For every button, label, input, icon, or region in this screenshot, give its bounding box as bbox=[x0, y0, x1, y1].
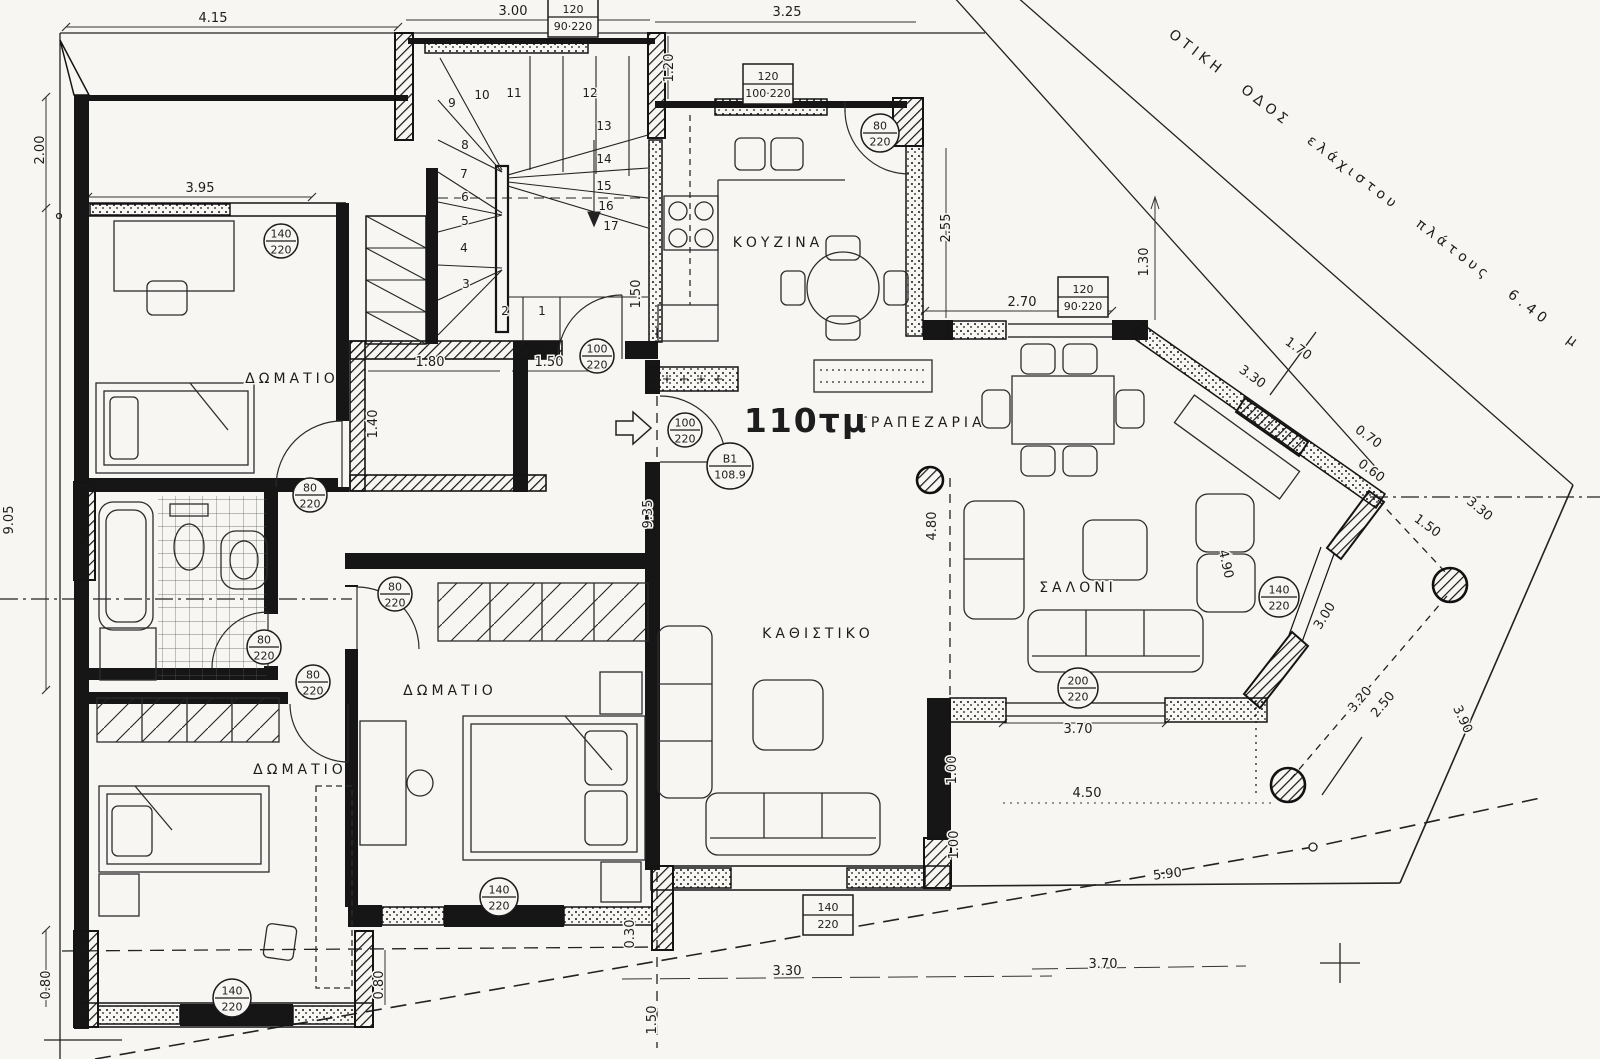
entry-arrow-icon bbox=[616, 412, 651, 444]
chair bbox=[1063, 446, 1097, 476]
door-tag-2-width: 100 bbox=[675, 417, 696, 430]
nightstand bbox=[99, 874, 139, 916]
sofa-2seat bbox=[964, 501, 1024, 619]
door-tag-7: 80220 bbox=[296, 665, 330, 699]
window-tag-2-height: 90·220 bbox=[1064, 300, 1103, 313]
chair bbox=[884, 271, 908, 305]
door-tag-0-width: 140 bbox=[271, 228, 292, 241]
column bbox=[917, 467, 943, 493]
door-tag-10-height: 220 bbox=[489, 900, 510, 913]
stair-step-number-2: 2 bbox=[501, 304, 509, 318]
dimension-label-4: 1.80 bbox=[416, 355, 445, 370]
pillow bbox=[585, 791, 627, 845]
unit-tag: Β1108.9 bbox=[707, 443, 753, 489]
door-tag-9-width: 200 bbox=[1068, 675, 1089, 688]
dimension-label-20: 4.80 bbox=[925, 512, 940, 541]
cabinet bbox=[658, 305, 718, 341]
door-tag-6-height: 220 bbox=[254, 650, 275, 663]
stair-step-number-17: 17 bbox=[603, 219, 618, 233]
door-tag-6: 80220 bbox=[247, 630, 281, 664]
bed bbox=[463, 716, 645, 860]
dimension-label-1: 3.00 bbox=[499, 4, 528, 19]
door-tag-1: 100220 bbox=[580, 339, 614, 373]
stair-step-number-12: 12 bbox=[582, 86, 597, 100]
stair-step-number-16: 16 bbox=[598, 199, 613, 213]
door-tag-3-width: 80 bbox=[873, 120, 887, 133]
sofa-corner bbox=[658, 626, 712, 798]
stair-step-number-7: 7 bbox=[460, 167, 468, 181]
dimension-label-3: 3.95 bbox=[186, 181, 215, 196]
dimension-label-18: 1.50 bbox=[629, 280, 644, 309]
unit-tag-width: Β1 bbox=[723, 453, 738, 466]
floor-plan-svg: ΔΩΜΑΤΙΟΔΩΜΑΤΙΟΔΩΜΑΤΙΟΚΟΥΖΙΝΑΤΡΑΠΕΖΑΡΙΑΣΑ… bbox=[0, 0, 1600, 1059]
door-tag-4-width: 80 bbox=[303, 482, 317, 495]
door-tag-10-width: 140 bbox=[489, 884, 510, 897]
dimension-label-21: 1.00 bbox=[945, 756, 960, 785]
stair-step-number-8: 8 bbox=[461, 138, 469, 152]
door-tag-2: 100220 bbox=[668, 413, 702, 447]
stair-step-number-5: 5 bbox=[461, 214, 469, 228]
chair bbox=[781, 271, 805, 305]
window-tag-1-width: 120 bbox=[758, 70, 779, 83]
room-label-5: ΣΑΛΟΝΙ bbox=[1039, 580, 1117, 596]
door-tag-11: 140220 bbox=[213, 979, 251, 1017]
chair bbox=[826, 316, 860, 340]
stair-step-number-14: 14 bbox=[596, 152, 611, 166]
window-tag-3-height: 220 bbox=[818, 918, 839, 931]
side-table bbox=[753, 680, 823, 750]
column bbox=[1271, 768, 1305, 802]
chair bbox=[1063, 344, 1097, 374]
dimension-label-23: 0.30 bbox=[623, 920, 638, 949]
nightstand bbox=[601, 862, 641, 902]
bedroom2-furniture bbox=[360, 583, 648, 902]
dimension-label-19: 9.35 bbox=[641, 500, 656, 529]
dimension-label-28: 1.70 bbox=[1282, 335, 1314, 364]
chair bbox=[1021, 344, 1055, 374]
chair bbox=[826, 236, 860, 260]
window-tag-3: 140220 bbox=[803, 895, 853, 935]
door-bedroom1 bbox=[276, 421, 342, 487]
dimension-label-0: 4.15 bbox=[199, 11, 228, 26]
dimension-label-9: 5.90 bbox=[1152, 865, 1183, 883]
bedroom1-furniture bbox=[96, 221, 254, 473]
dimension-label-7: 3.70 bbox=[1064, 722, 1093, 737]
window-tag-2-width: 120 bbox=[1073, 283, 1094, 296]
door-tag-11-height: 220 bbox=[222, 1001, 243, 1014]
dimension-label-8: 4.50 bbox=[1073, 786, 1102, 801]
survey-point bbox=[57, 214, 62, 219]
stair-step-number-3: 3 bbox=[462, 277, 470, 291]
dimension-label-37: 3.90 bbox=[1449, 703, 1475, 736]
door-tag-3-height: 220 bbox=[870, 136, 891, 149]
window-tag-0: 12090·220 bbox=[548, 0, 598, 37]
door-tag-11-width: 140 bbox=[222, 985, 243, 998]
stair-step-number-13: 13 bbox=[596, 119, 611, 133]
bathroom-fixtures bbox=[99, 496, 267, 680]
dimension-label-12: 2.00 bbox=[33, 136, 48, 165]
bathtub bbox=[99, 502, 153, 630]
sink bbox=[771, 138, 803, 170]
room-label-3: ΚΟΥΖΙΝΑ bbox=[733, 235, 824, 251]
chair bbox=[147, 281, 187, 315]
desk bbox=[360, 721, 406, 845]
stair-step-number-15: 15 bbox=[596, 179, 611, 193]
stair-step-number-6: 6 bbox=[461, 190, 469, 204]
dimension-label-2: 3.25 bbox=[773, 5, 802, 20]
structural-columns bbox=[917, 467, 1467, 802]
dimension-label-14: 1.20 bbox=[662, 54, 677, 83]
dimension-label-5: 1.50 bbox=[535, 355, 564, 370]
door-tag-4: 80220 bbox=[293, 478, 327, 512]
sofa-3seat bbox=[1028, 610, 1203, 672]
door-tag-9: 200220 bbox=[1058, 668, 1098, 708]
wardrobe bbox=[97, 698, 279, 742]
window-tag-2: 12090·220 bbox=[1058, 277, 1108, 317]
kathistiko-furniture bbox=[658, 626, 880, 855]
unit-tag-height: 108.9 bbox=[714, 469, 746, 482]
armchair bbox=[1196, 494, 1254, 552]
door-tag-1-height: 220 bbox=[587, 359, 608, 372]
door-tag-8-height: 220 bbox=[1269, 600, 1290, 613]
dimension-label-24: 1.50 bbox=[645, 1006, 660, 1035]
sink bbox=[735, 138, 765, 170]
understair-shelves bbox=[366, 216, 426, 344]
dimension-label-11: 3.70 bbox=[1089, 957, 1118, 972]
stair-step-number-4: 4 bbox=[460, 241, 468, 255]
wardrobe bbox=[438, 583, 648, 641]
dimension-label-27: 3.30 bbox=[1236, 363, 1268, 392]
door-bedroom3 bbox=[290, 704, 348, 762]
sideboard bbox=[814, 360, 932, 392]
dimension-label-10: 3.30 bbox=[773, 964, 802, 979]
chair bbox=[1021, 446, 1055, 476]
stair-step-number-11: 11 bbox=[506, 86, 521, 100]
door-tag-9-height: 220 bbox=[1068, 691, 1089, 704]
door-tag-0-height: 220 bbox=[271, 244, 292, 257]
dimension-label-29: 0.70 bbox=[1352, 423, 1384, 452]
door-tag-2-height: 220 bbox=[675, 433, 696, 446]
nightstand bbox=[600, 672, 642, 714]
stool bbox=[407, 770, 433, 796]
room-label-4: ΤΡΑΠΕΖΑΡΙΑ bbox=[857, 415, 985, 431]
dimension-label-17: 1.40 bbox=[366, 410, 381, 439]
door-tag-10: 140220 bbox=[480, 878, 518, 916]
door-tag-1-width: 100 bbox=[587, 343, 608, 356]
area-label: 110τμ bbox=[744, 401, 868, 440]
bed bbox=[99, 786, 269, 872]
stair-step-number-9: 9 bbox=[448, 96, 456, 110]
door-tag-6-width: 80 bbox=[257, 634, 271, 647]
window-sill-bands bbox=[90, 40, 1385, 1024]
column bbox=[1433, 568, 1467, 602]
door-tag-3: 80220 bbox=[861, 114, 899, 152]
bedroom3-furniture bbox=[97, 698, 352, 988]
kitchen-table bbox=[807, 252, 879, 324]
pillow bbox=[110, 397, 138, 459]
road-edge-inner bbox=[953, 0, 1380, 472]
door-tag-8-width: 140 bbox=[1269, 584, 1290, 597]
room-label-6: ΚΑΘΙΣΤΙΚΟ bbox=[762, 626, 874, 642]
dimension-label-25: 0.80 bbox=[39, 971, 54, 1000]
room-label-2: ΔΩΜΑΤΙΟ bbox=[253, 762, 347, 778]
stair-step-number-1: 1 bbox=[538, 304, 546, 318]
road-edge-outer bbox=[1016, 0, 1573, 485]
dimension-label-16: 1.30 bbox=[1137, 248, 1152, 277]
dining-table bbox=[1012, 376, 1114, 444]
tags-layer: 1402201002201002208022080220802208022080… bbox=[213, 0, 1299, 1017]
chair bbox=[1116, 390, 1144, 428]
dimension-label-34: 4.90 bbox=[1215, 548, 1236, 580]
door-tag-4-height: 220 bbox=[300, 498, 321, 511]
dimension-label-26: 0.80 bbox=[372, 971, 387, 1000]
pillow bbox=[112, 806, 152, 856]
dimension-label-13: 9.05 bbox=[2, 506, 17, 535]
door-tag-8: 140220 bbox=[1259, 577, 1299, 617]
window-tag-1-height: 100·220 bbox=[745, 87, 791, 100]
dimension-label-31: 1.50 bbox=[1411, 512, 1443, 541]
dimension-label-22: 1.00 bbox=[947, 831, 962, 860]
coffee-table bbox=[1083, 520, 1147, 580]
pillow bbox=[585, 731, 627, 785]
floor-plan-page: ΔΩΜΑΤΙΟΔΩΜΑΤΙΟΔΩΜΑΤΙΟΚΟΥΖΙΝΑΤΡΑΠΕΖΑΡΙΑΣΑ… bbox=[0, 0, 1600, 1059]
door-tag-7-height: 220 bbox=[303, 685, 324, 698]
stair-step-number-10: 10 bbox=[474, 88, 489, 102]
dimension-label-32: 3.30 bbox=[1463, 494, 1495, 524]
shaft-walls-hatched bbox=[350, 341, 562, 491]
stair-treads bbox=[438, 56, 648, 343]
window-tag-3-width: 140 bbox=[818, 901, 839, 914]
window-tag-0-height: 90·220 bbox=[554, 20, 593, 33]
chair bbox=[982, 390, 1010, 428]
door-tag-5-height: 220 bbox=[385, 597, 406, 610]
sofa-3seat bbox=[706, 793, 880, 855]
window-tag-0-width: 120 bbox=[563, 3, 584, 16]
door-tag-5-width: 80 bbox=[388, 581, 402, 594]
room-label-0: ΔΩΜΑΤΙΟ bbox=[245, 371, 339, 387]
door-tag-0: 140220 bbox=[264, 224, 298, 258]
dimension-label-15: 2.55 bbox=[939, 214, 954, 243]
window-tag-1: 120100·220 bbox=[743, 64, 793, 104]
tapered-wall bbox=[60, 40, 89, 95]
door-tag-5: 80220 bbox=[378, 577, 412, 611]
stool bbox=[263, 923, 297, 961]
dimension-label-6: 2.70 bbox=[1008, 295, 1037, 310]
room-label-1: ΔΩΜΑΤΙΟ bbox=[403, 683, 497, 699]
door-tag-7-width: 80 bbox=[306, 669, 320, 682]
